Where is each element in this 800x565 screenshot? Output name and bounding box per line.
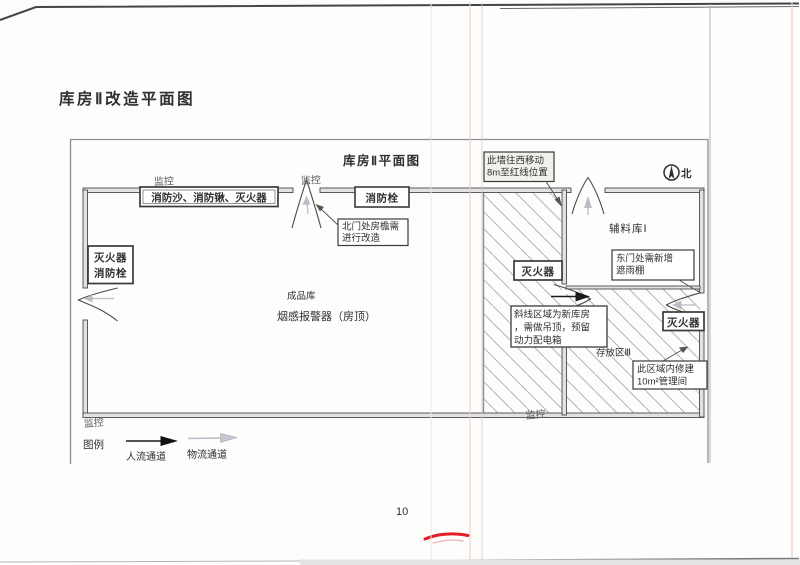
finished-goods-label: 成品库 (287, 290, 316, 302)
monitor-label-north-door: 监控 (300, 173, 321, 187)
west-door (79, 288, 118, 321)
eaves-line1: 北门处房檐需 (342, 221, 399, 233)
aux-warehouse-label: 辅料库Ⅰ (609, 222, 648, 235)
plan-title: 库房Ⅱ平面图 (343, 153, 421, 168)
page-title: 库房Ⅱ改造平面图 (59, 89, 195, 108)
legend: 图例 人流通道 物流通道 (83, 434, 237, 464)
move-wall-line2: 8m至红线位置 (487, 167, 548, 179)
north-arrow-icon (664, 165, 679, 180)
new-warehouse-line1: 斜线区域为新库房 (514, 309, 590, 321)
hydrant-line: 消防栓 (94, 267, 127, 280)
storage-area-label: 存放区Ⅲ (596, 346, 631, 359)
scanned-document-page: 库房Ⅱ改造平面图 库房Ⅱ平面图 北 (0, 0, 800, 565)
logistics-flow-arrow (188, 438, 222, 439)
monitor-label-top-left: 监控 (154, 174, 174, 188)
logistics-flow-label: 物流通道 (187, 448, 227, 461)
extinguisher-box-middle: 灭火器 (514, 261, 562, 280)
new-warehouse-line3: 动力配电箱 (514, 335, 562, 347)
smoke-detector-label: 烟感报警器（房顶） (277, 309, 376, 323)
new-warehouse-line2: ，需做吊顶，预留 (514, 322, 590, 334)
fire-supplies-label: 消防沙、消防锹、灭火器 (151, 191, 267, 204)
mgmt-line1: 此区域内修建 (637, 363, 695, 375)
extinguisher-hydrant-box: 灭火器 消防栓 (88, 246, 133, 284)
extinguisher-right-label: 灭火器 (666, 317, 700, 329)
canopy-line1: 东门处需新增 (616, 253, 673, 265)
extinguisher-middle-label: 灭火器 (521, 266, 555, 278)
north-label: 北 (681, 167, 692, 180)
eaves-annotation: 北门处房檐需 进行改造 (316, 204, 409, 246)
extinguisher-line: 灭火器 (93, 252, 127, 264)
people-flow-label: 人流通道 (126, 450, 166, 463)
extinguisher-box-right: 灭火器 (663, 312, 704, 331)
mgmt-line2: 10m²管理间 (637, 376, 687, 388)
eaves-line2: 进行改造 (342, 232, 381, 244)
move-wall-line1: 此墙往西移动 (487, 155, 544, 167)
fire-supplies-box: 消防沙、消防锹、灭火器 (140, 187, 278, 207)
floor-plan-drawing: 库房Ⅱ改造平面图 库房Ⅱ平面图 北 (0, 0, 800, 565)
paper-top-edge (0, 4, 799, 21)
hydrant-box: 消防栓 (355, 187, 409, 207)
hatch-region-west-strip (484, 192, 562, 413)
hydrant-label: 消防栓 (366, 192, 399, 205)
legend-title: 图例 (83, 438, 104, 451)
new-warehouse-annotation: 斜线区域为新库房 ，需做吊顶，预留 动力配电箱 (511, 306, 607, 347)
canopy-line2: 遮雨棚 (616, 265, 645, 277)
page-number: 10 (396, 506, 408, 518)
